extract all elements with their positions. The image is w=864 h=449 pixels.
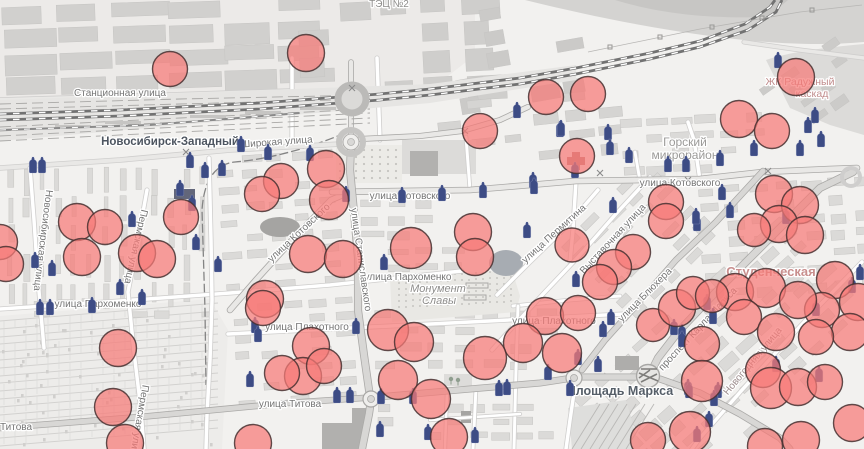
svg-text:улица Титова: улица Титова: [259, 399, 322, 410]
svg-text:Горский: Горский: [663, 135, 707, 149]
svg-text:улица Пархоменко: улица Пархоменко: [365, 272, 452, 283]
svg-text:Новосибирск-Западный: Новосибирск-Западный: [101, 136, 239, 148]
svg-text:Монумент: Монумент: [410, 283, 466, 295]
svg-text:Титова: Титова: [0, 422, 32, 433]
svg-text:улица Пархоменко: улица Пархоменко: [55, 299, 142, 310]
svg-text:ТЭЦ №2: ТЭЦ №2: [369, 0, 409, 10]
svg-text:улица Котовского: улица Котовского: [640, 178, 721, 189]
svg-text:Славы: Славы: [422, 295, 456, 307]
svg-text:Площадь Маркса: Площадь Маркса: [567, 384, 674, 398]
svg-text:Станционная улица: Станционная улица: [74, 88, 166, 99]
